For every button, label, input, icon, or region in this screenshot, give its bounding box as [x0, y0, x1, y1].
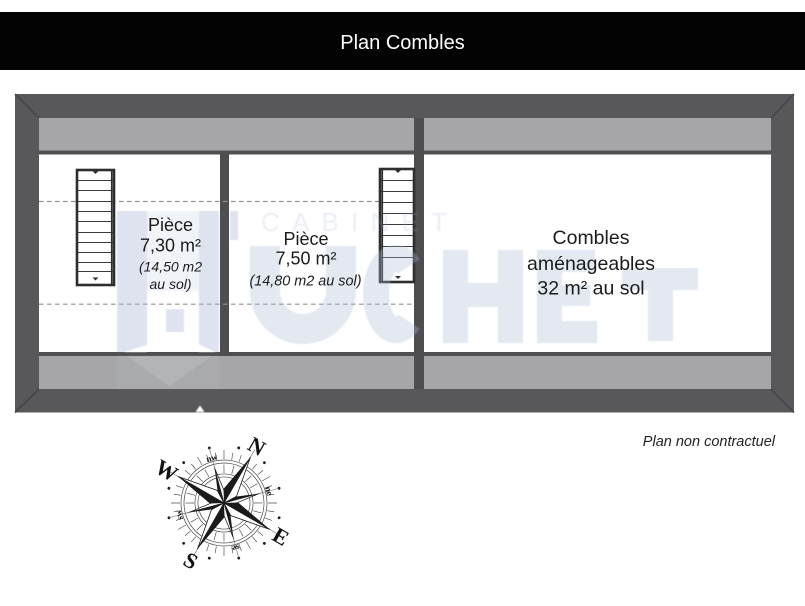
svg-text:sw: sw	[173, 508, 185, 521]
svg-text:32 m² au sol: 32 m² au sol	[537, 278, 644, 300]
svg-text:E: E	[268, 522, 293, 551]
svg-text:au sol): au sol)	[149, 276, 191, 292]
svg-text:S: S	[179, 547, 202, 575]
svg-text:Plan non contractuel: Plan non contractuel	[643, 434, 776, 450]
svg-text:N: N	[244, 431, 270, 461]
svg-text:ne: ne	[263, 485, 275, 496]
svg-text:Pièce: Pièce	[148, 215, 193, 235]
svg-text:Combles: Combles	[553, 227, 630, 249]
svg-text:(14,80 m2 au sol): (14,80 m2 au sol)	[250, 274, 362, 290]
svg-text:7,30 m²: 7,30 m²	[140, 236, 201, 256]
svg-text:7,50 m²: 7,50 m²	[275, 249, 336, 269]
svg-text:Pièce: Pièce	[283, 229, 328, 249]
svg-text:W: W	[151, 454, 183, 487]
svg-text:nw: nw	[205, 451, 219, 464]
svg-text:(14,50 m2: (14,50 m2	[139, 259, 202, 275]
svg-text:aménageables: aménageables	[527, 253, 655, 275]
